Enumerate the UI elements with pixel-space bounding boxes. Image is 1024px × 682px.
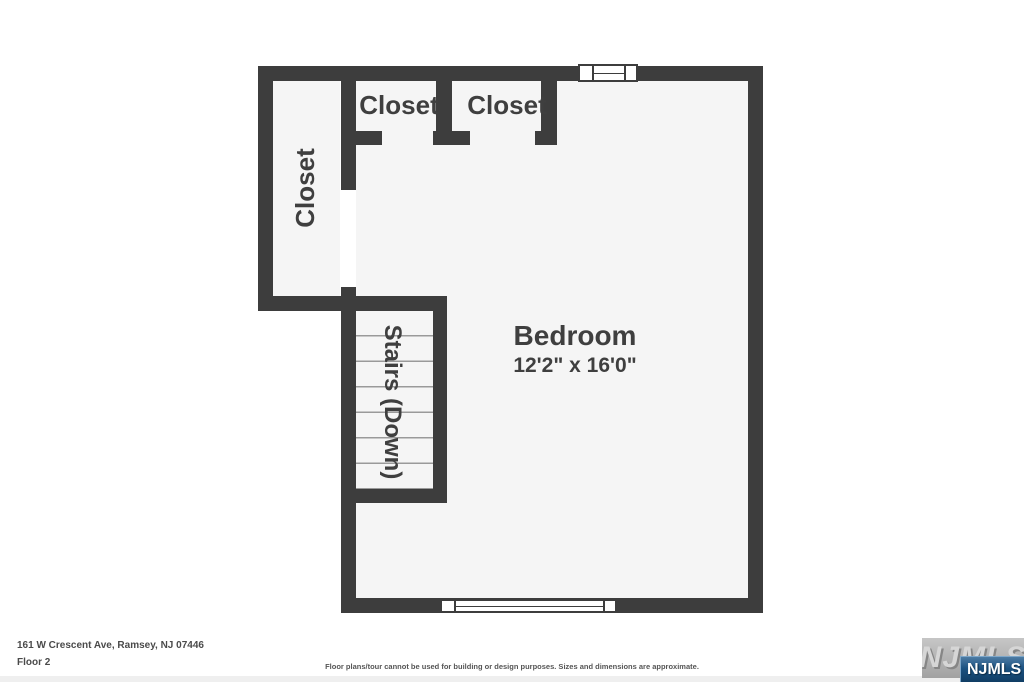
wall-left-closet-bottom — [258, 296, 347, 311]
door-opening — [341, 190, 356, 287]
window-bottom — [440, 599, 617, 613]
property-address: 161 W Crescent Ave, Ramsey, NJ 07446 — [17, 640, 204, 651]
njmls-logo-text: NJMLS — [961, 661, 1021, 679]
wall-right — [748, 66, 763, 613]
wall-bedroom-left — [341, 287, 356, 613]
disclaimer-text: Floor plans/tour cannot be used for buil… — [0, 662, 1024, 671]
wall-stairs-right — [433, 296, 447, 503]
stairs-label: Stairs (Down) — [378, 302, 406, 502]
wall-closet1-bottom-left — [347, 131, 382, 145]
window-top — [578, 64, 638, 82]
window-centerline — [455, 606, 604, 607]
bedroom-dimensions: 12'2" x 16'0" — [475, 354, 675, 378]
floorplan-page: Closet Closet Closet Stairs (Down) Bedro… — [0, 0, 1024, 682]
closet-top-1-label: Closet — [349, 89, 449, 121]
wall-left-closet-outer — [258, 66, 273, 311]
bedroom-label: Bedroom — [475, 321, 675, 351]
closet-left-label: Closet — [289, 138, 321, 238]
njmls-logo-badge: NJMLS — [960, 656, 1024, 682]
closet-top-2-label: Closet — [457, 89, 557, 121]
wall-left-closet-divider-upper — [341, 66, 356, 190]
window-centerline — [593, 73, 625, 74]
wall-closet2-bottom-right — [535, 131, 557, 145]
wall-top — [258, 66, 763, 81]
footer-divider-strip — [0, 676, 1024, 682]
wall-closet-bottom-middle — [433, 131, 470, 145]
